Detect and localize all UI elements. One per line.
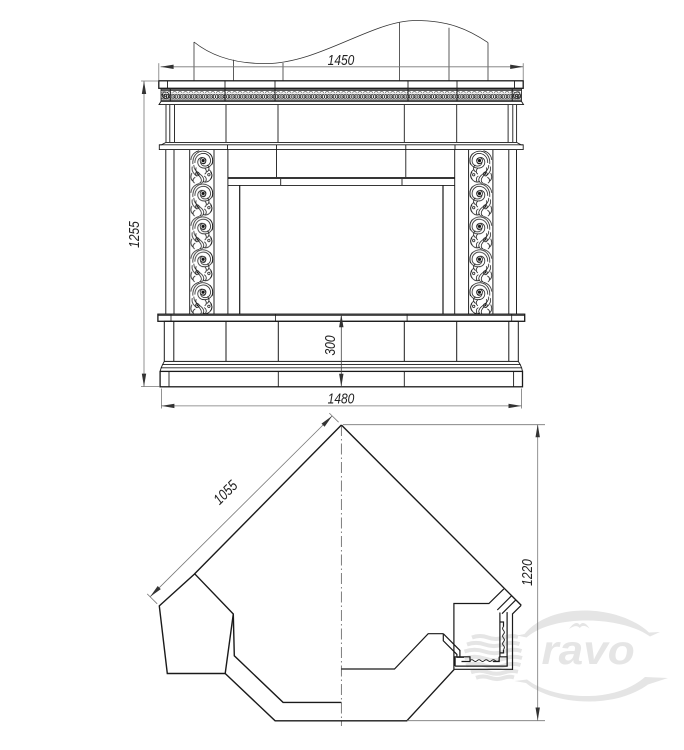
svg-text:1450: 1450 [328, 52, 355, 69]
svg-text:ravo: ravo [542, 627, 635, 673]
svg-text:300: 300 [322, 335, 339, 355]
svg-text:1480: 1480 [328, 390, 355, 407]
svg-text:1255: 1255 [126, 221, 143, 248]
svg-text:1220: 1220 [519, 559, 536, 586]
